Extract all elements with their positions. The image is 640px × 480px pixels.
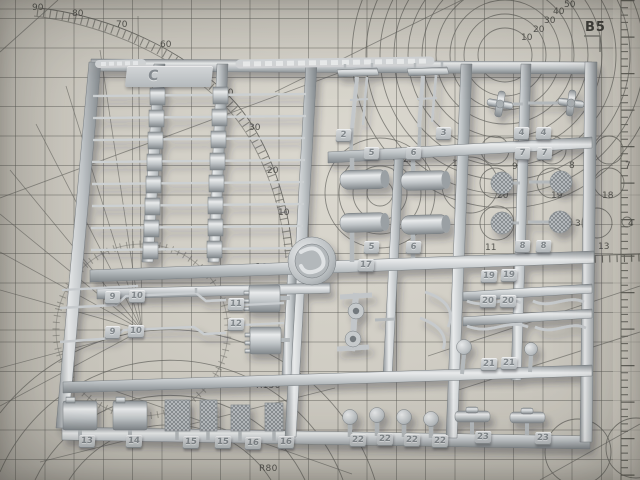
boat-parts <box>455 407 545 435</box>
sprue-gate-letter-plate: C <box>125 66 213 87</box>
sprue-svg <box>0 0 640 480</box>
rail-bottom <box>62 427 590 449</box>
sprue-runner-c <box>56 59 597 449</box>
cross-parts <box>485 88 586 119</box>
gate-letter: C <box>147 68 159 84</box>
mast-parts <box>337 62 449 150</box>
radar-mesh-parts <box>491 171 572 234</box>
rail-r2 <box>463 309 592 326</box>
deckhouse-box-parts <box>244 285 290 354</box>
rail-v5 <box>446 64 472 438</box>
round-medallion-part <box>288 237 336 285</box>
gun-barrel-parts <box>91 87 306 259</box>
photo-model-sprue-on-cutting-mat: 9080706040302010 1020304050 2515510 9872… <box>0 0 640 480</box>
